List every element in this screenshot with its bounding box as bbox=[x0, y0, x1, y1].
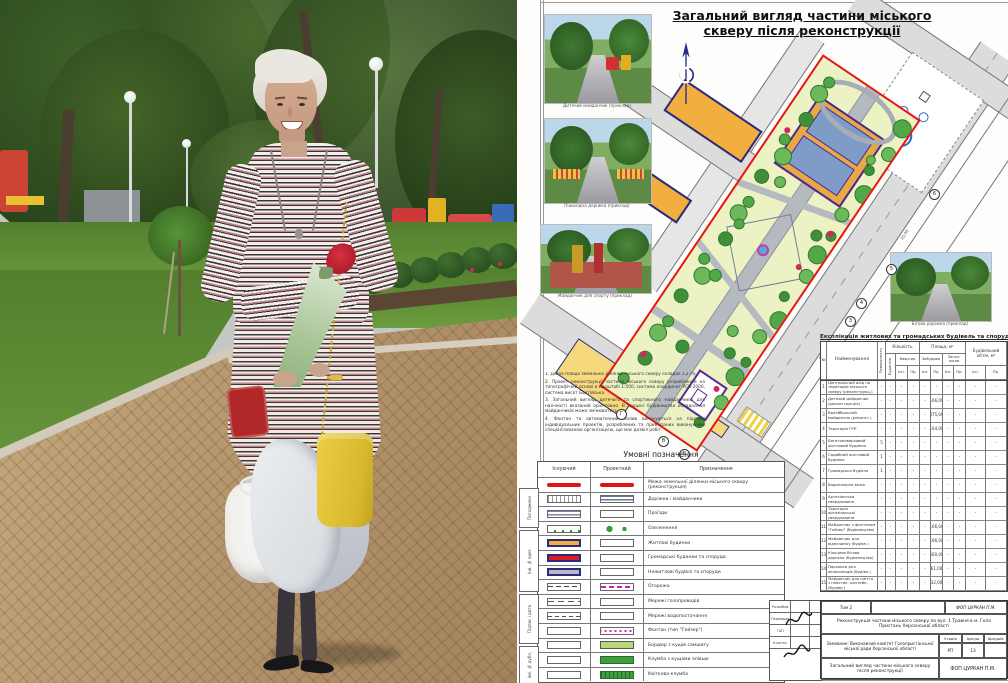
example-photo bbox=[544, 14, 652, 104]
table-cell: - bbox=[986, 409, 1007, 423]
lines-gray-swatch bbox=[600, 495, 634, 503]
legend-existing-swatch bbox=[538, 478, 591, 492]
table-cell: - bbox=[986, 563, 1007, 577]
legend-existing-swatch bbox=[538, 668, 591, 682]
tree-symbol bbox=[808, 227, 825, 244]
legend-label: Озеленення bbox=[644, 522, 784, 536]
plan-marker-4: 4 bbox=[856, 298, 867, 309]
table-cell: - bbox=[886, 437, 896, 451]
empty-swatch bbox=[600, 598, 634, 606]
screenshot: 25,00 40,00 8,00 bbox=[0, 0, 1008, 683]
hatch-dots-swatch bbox=[547, 495, 581, 503]
table-cell: Артезіанська свердловина bbox=[827, 493, 878, 507]
col-name: Найменування bbox=[827, 342, 878, 380]
rose-dot bbox=[470, 268, 474, 272]
legend-label: Бордюр з кущів самшиту bbox=[644, 639, 784, 653]
hair-fringe bbox=[255, 49, 313, 83]
rose-leaf bbox=[319, 267, 333, 279]
table-cell: - bbox=[966, 479, 986, 493]
sheet-header: Аркуш bbox=[962, 634, 985, 643]
flower-strip bbox=[617, 169, 644, 179]
table-cell: - bbox=[966, 381, 986, 395]
table-cell: - bbox=[886, 381, 896, 395]
table-cell: - bbox=[966, 493, 986, 507]
table-cell: - bbox=[896, 507, 908, 521]
table-cell: Дитячий майданчик (реконструкція) bbox=[827, 395, 878, 409]
neck bbox=[281, 141, 307, 157]
tree-symbol bbox=[804, 242, 830, 268]
table-cell: - bbox=[986, 535, 1007, 549]
table-cell: - bbox=[886, 507, 896, 521]
sheet-title-line2: скверу після реконструкції bbox=[637, 23, 967, 38]
table-cell: - bbox=[886, 479, 896, 493]
table-cell: - bbox=[966, 521, 986, 535]
table-cell: - bbox=[954, 437, 966, 451]
table-cell: - bbox=[931, 437, 943, 451]
table-cell: - bbox=[920, 381, 931, 395]
table-cell: - bbox=[886, 535, 896, 549]
legend-label: Громадські будинки та споруди bbox=[644, 551, 784, 565]
table-cell: - bbox=[954, 535, 966, 549]
table-cell: - bbox=[920, 437, 931, 451]
table-cell: - bbox=[986, 465, 1007, 479]
bld-gray-swatch bbox=[547, 568, 581, 576]
table-cell: - bbox=[954, 563, 966, 577]
table-cell: - bbox=[878, 535, 886, 549]
sub-ex: Існ. bbox=[966, 366, 986, 380]
empty-swatch bbox=[600, 510, 634, 518]
table-cell: - bbox=[943, 493, 954, 507]
table-row: 1Центральний вхід на територію міського … bbox=[821, 381, 1007, 395]
table-cell: - bbox=[886, 423, 896, 437]
table-cell: - bbox=[920, 521, 931, 535]
empty-swatch bbox=[600, 568, 634, 576]
legend-existing-swatch bbox=[538, 609, 591, 623]
hand bbox=[273, 371, 297, 387]
nose bbox=[288, 107, 292, 117]
table-cell: - bbox=[966, 563, 986, 577]
table-cell: - bbox=[908, 465, 920, 479]
trees-swatch bbox=[600, 525, 634, 533]
lamp-globe bbox=[124, 91, 136, 103]
table-cell: - bbox=[954, 409, 966, 423]
table-row: 5Багатоповерховий житловий будинок5-----… bbox=[821, 437, 1007, 451]
sub-ex: Існ. bbox=[896, 366, 908, 380]
table-row: 13Кільцева бігова доріжка (будівництво)-… bbox=[821, 549, 1007, 563]
table-row: 9Артезіанська свердловина---------- bbox=[821, 493, 1007, 507]
table-cell: - bbox=[896, 451, 908, 465]
photo-tree bbox=[550, 22, 592, 70]
lines-purple-swatch bbox=[547, 510, 581, 518]
legend-label: Доріжки і майданчики bbox=[644, 493, 784, 507]
table-cell: Водонапірна вежа bbox=[827, 479, 878, 493]
stamp-sheet-name: Загальний вигляд частини міського скверу… bbox=[821, 658, 939, 680]
example-photo bbox=[544, 118, 652, 204]
dots-magenta-swatch bbox=[600, 627, 634, 635]
table-cell: - bbox=[920, 563, 931, 577]
legend-row: Проїзди bbox=[538, 507, 784, 522]
table-cell: - bbox=[954, 507, 966, 521]
legend-existing-swatch bbox=[538, 493, 591, 507]
lamp-globe bbox=[182, 139, 191, 148]
signature bbox=[784, 609, 814, 631]
table-cell: Багатоповерховий житловий будинок bbox=[827, 437, 878, 451]
table-cell: - bbox=[966, 465, 986, 479]
table-cell: - bbox=[886, 577, 896, 591]
table-row: 11Майданчик з фонтаном "Гейзер" (будівни… bbox=[821, 521, 1007, 535]
empty-swatch bbox=[600, 612, 634, 620]
table-cell: - bbox=[943, 549, 954, 563]
legend-row: Житлові будинки bbox=[538, 536, 784, 551]
shoe bbox=[262, 654, 300, 673]
legend-existing-swatch bbox=[538, 653, 591, 667]
table-cell: - bbox=[878, 507, 886, 521]
legend-project-swatch bbox=[591, 551, 644, 565]
table-cell: - bbox=[896, 563, 908, 577]
sapling-canopy bbox=[148, 206, 214, 266]
note-paragraph: 2. Проект реконструкції частини міського… bbox=[545, 380, 705, 397]
table-cell: 166,00 bbox=[931, 535, 943, 549]
table-cell: - bbox=[986, 521, 1007, 535]
legend-row: Клумба з кущами ялівцю bbox=[538, 653, 784, 668]
table-cell: 164,00 bbox=[931, 423, 943, 437]
table-cell: - bbox=[986, 549, 1007, 563]
play-equipment bbox=[594, 243, 603, 274]
park-photo bbox=[0, 0, 517, 683]
table-cell: - bbox=[986, 381, 1007, 395]
table-row: 2Дитячий майданчик (реконструкція)-----1… bbox=[821, 395, 1007, 409]
table-cell: Центральний вхід на територію міського с… bbox=[827, 381, 878, 395]
table-cell: - bbox=[954, 381, 966, 395]
table-cell: - bbox=[908, 451, 920, 465]
table-cell: - bbox=[908, 549, 920, 563]
eye bbox=[277, 103, 283, 106]
table-cell: Майданчик з фонтаном "Гейзер" (будівницт… bbox=[827, 521, 878, 535]
table-title: Експлікація житлових та громадських буді… bbox=[820, 334, 1008, 340]
legend-existing-swatch bbox=[538, 624, 591, 638]
green-light-swatch bbox=[600, 641, 634, 649]
table-cell: - bbox=[896, 577, 908, 591]
table-cell: 32,00 bbox=[931, 577, 943, 591]
legend-project-swatch bbox=[591, 624, 644, 638]
table-cell: - bbox=[908, 535, 920, 549]
legend-project-swatch bbox=[591, 668, 644, 682]
table-cell: - bbox=[931, 381, 943, 395]
title-block: Том 2 ФОП ЦУРКАН П.М. Реконструкція част… bbox=[820, 600, 1008, 679]
table-row: 12Майданчик для відпочинку (будівн.)----… bbox=[821, 535, 1007, 549]
table-cell: - bbox=[896, 381, 908, 395]
table-cell: - bbox=[986, 479, 1007, 493]
table-cell: - bbox=[878, 395, 886, 409]
table-cell: - bbox=[943, 507, 954, 521]
table-cell: - bbox=[966, 549, 986, 563]
table-cell: - bbox=[920, 493, 931, 507]
legend-existing-swatch bbox=[538, 551, 591, 565]
table-cell: - bbox=[896, 535, 908, 549]
sub-pr: Пр. bbox=[986, 366, 1007, 380]
group-qty: Кількість bbox=[886, 342, 920, 354]
legend-project-swatch bbox=[591, 609, 644, 623]
table-cell: - bbox=[931, 507, 943, 521]
table-cell: - bbox=[920, 535, 931, 549]
plan-marker-В: В bbox=[658, 436, 669, 447]
legend-project-swatch bbox=[591, 507, 644, 521]
table-cell: - bbox=[878, 577, 886, 591]
table-cell: - bbox=[908, 577, 920, 591]
empty-swatch bbox=[547, 656, 581, 664]
line-red-swatch bbox=[547, 483, 581, 487]
table-row: 10Територія артезіанської свердловини---… bbox=[821, 507, 1007, 521]
yellow-handbag bbox=[317, 433, 373, 527]
empty-swatch bbox=[547, 641, 581, 649]
table-cell: - bbox=[943, 535, 954, 549]
table-cell: - bbox=[886, 493, 896, 507]
table-cell: - bbox=[920, 549, 931, 563]
table-cell: - bbox=[920, 507, 931, 521]
sheet-title: Загальний вигляд частини міського скверу… bbox=[637, 8, 967, 38]
table-cell: 166,00 bbox=[931, 395, 943, 409]
leg bbox=[276, 585, 296, 666]
tree-symbol bbox=[777, 289, 792, 304]
table-cell: - bbox=[943, 465, 954, 479]
sub-ex: Існ. bbox=[920, 366, 931, 380]
legend: Умовні позначення Існуючий Проектний При… bbox=[537, 450, 785, 683]
table-cell: - bbox=[966, 409, 986, 423]
stage-header: Стадія bbox=[939, 634, 962, 643]
table-cell: - bbox=[943, 423, 954, 437]
col-buildings: Будинків bbox=[886, 354, 896, 380]
legend-row: Огорожа bbox=[538, 580, 784, 595]
sub-pr: Пр. bbox=[908, 366, 920, 380]
stamp-tom: Том 2 bbox=[821, 601, 871, 614]
table-cell: 1 bbox=[878, 465, 886, 479]
table-cell: - bbox=[966, 423, 986, 437]
legend-existing-swatch bbox=[538, 536, 591, 550]
legend-existing-swatch bbox=[538, 522, 591, 536]
table-cell: - bbox=[896, 549, 908, 563]
lamp-post bbox=[129, 102, 132, 230]
legend-row: Мережі газопроводів bbox=[538, 595, 784, 610]
eye bbox=[299, 103, 305, 106]
table-cell: Громадська будівля bbox=[827, 465, 878, 479]
example-photo-caption: Бігова доріжка (приклад) bbox=[890, 321, 990, 326]
table-cell: - bbox=[878, 423, 886, 437]
table-cell: - bbox=[931, 479, 943, 493]
legend-label: Фонтан (тип "Гейзер") bbox=[644, 624, 784, 638]
table-cell: - bbox=[986, 451, 1007, 465]
table-cell: 560,00 bbox=[931, 549, 943, 563]
table-cell: - bbox=[908, 493, 920, 507]
legend-col-project: Проектний bbox=[591, 462, 644, 477]
legend-label: Межа земельної ділянки міського скверу (… bbox=[644, 478, 784, 492]
col-floors: Поверховість bbox=[878, 342, 886, 380]
table-cell: - bbox=[966, 437, 986, 451]
table-cell: - bbox=[920, 577, 931, 591]
legend-label: Житлові будинки bbox=[644, 536, 784, 550]
table-cell: - bbox=[943, 409, 954, 423]
table-cell: - bbox=[896, 437, 908, 451]
table-cell: - bbox=[966, 577, 986, 591]
legend-project-swatch bbox=[591, 536, 644, 550]
dash-magenta-swatch bbox=[600, 583, 634, 591]
table-cell: - bbox=[896, 395, 908, 409]
stamp-code: ФОП ЦУРКАН П.М. bbox=[945, 601, 1007, 614]
table-row: 15Майданчик для сміття з пластик. контей… bbox=[821, 577, 1007, 591]
legend-project-swatch bbox=[591, 639, 644, 653]
tree-symbol bbox=[772, 174, 789, 191]
legend-row: Громадські будинки та споруди bbox=[538, 551, 784, 566]
legend-title: Умовні позначення bbox=[537, 450, 785, 461]
table-cell: - bbox=[943, 577, 954, 591]
legend-existing-swatch bbox=[538, 507, 591, 521]
photo-tree bbox=[896, 258, 936, 295]
table-cell: - bbox=[886, 549, 896, 563]
legend-label: Квіткова клумба bbox=[644, 668, 784, 682]
table-cell: - bbox=[943, 521, 954, 535]
empty-swatch bbox=[600, 539, 634, 547]
table-cell: - bbox=[878, 549, 886, 563]
plan-marker-3: 3 bbox=[845, 316, 856, 327]
sapling-trunk bbox=[178, 240, 181, 336]
table-cell: - bbox=[908, 437, 920, 451]
table-cell: Кільцева бігова доріжка (будівництво) bbox=[827, 549, 878, 563]
frame-line bbox=[540, 2, 1008, 3]
legend-label: Мережі водопостачання bbox=[644, 609, 784, 623]
table-cell: - bbox=[931, 451, 943, 465]
table-cell: - bbox=[878, 493, 886, 507]
table-cell: - bbox=[986, 507, 1007, 521]
table-cell: - bbox=[943, 563, 954, 577]
table-cell: - bbox=[943, 479, 954, 493]
side-strip-box: Інв. № ориг. bbox=[519, 530, 539, 592]
table-cell: - bbox=[886, 409, 896, 423]
table-cell: - bbox=[878, 409, 886, 423]
col-built: Забудови bbox=[920, 354, 943, 366]
legend-col-existing: Існуючий bbox=[538, 462, 591, 477]
table-cell: - bbox=[966, 395, 986, 409]
table-cell: - bbox=[920, 409, 931, 423]
legend-label: Мережі газопроводів bbox=[644, 595, 784, 609]
table-cell: - bbox=[886, 465, 896, 479]
empty-swatch bbox=[600, 554, 634, 562]
north-arrow-icon bbox=[673, 42, 699, 104]
table-cell: - bbox=[986, 493, 1007, 507]
table-cell: - bbox=[954, 549, 966, 563]
table-cell: 61,00 bbox=[931, 563, 943, 577]
stamp-empty bbox=[871, 601, 945, 614]
photo-tree bbox=[607, 228, 649, 262]
legend-project-swatch bbox=[591, 522, 644, 536]
table-cell: - bbox=[943, 381, 954, 395]
table-cell: - bbox=[896, 479, 908, 493]
table-cell: 1 bbox=[878, 451, 886, 465]
table-cell: Територія артезіанської свердловини bbox=[827, 507, 878, 521]
table-cell: - bbox=[943, 437, 954, 451]
legend-row: Мережі водопостачання bbox=[538, 609, 784, 624]
table-cell: - bbox=[920, 479, 931, 493]
legend-row: Озеленення bbox=[538, 522, 784, 537]
legend-project-swatch bbox=[591, 493, 644, 507]
play-equipment bbox=[621, 55, 631, 69]
table-cell: - bbox=[954, 479, 966, 493]
plan-marker-5: 5 bbox=[886, 264, 897, 275]
table-cell: - bbox=[908, 395, 920, 409]
legend-project-swatch bbox=[591, 478, 644, 492]
stamp-firm: ФОП ЦУРКАН П.М. bbox=[939, 658, 1007, 680]
legend-label: Огорожа bbox=[644, 580, 784, 594]
plan-marker-Г: Г bbox=[616, 409, 627, 420]
side-strip-box: Підпис і дата bbox=[519, 594, 539, 644]
group-area: Площа, м² bbox=[920, 342, 966, 354]
example-photo-caption: Дитячий майданчик (приклад) bbox=[544, 103, 650, 108]
hedge-bush bbox=[488, 243, 517, 269]
table-cell: Парковка для велосипедів (будівн.) bbox=[827, 563, 878, 577]
legend-existing-swatch bbox=[538, 566, 591, 580]
woman bbox=[215, 45, 405, 675]
photo-tree bbox=[550, 126, 592, 172]
legend-existing-swatch bbox=[538, 639, 591, 653]
table-cell: - bbox=[878, 381, 886, 395]
example-photo bbox=[890, 252, 992, 322]
table-cell: - bbox=[920, 451, 931, 465]
table-cell: - bbox=[896, 521, 908, 535]
table-cell: Садибний житловий будинок bbox=[827, 451, 878, 465]
table-cell: - bbox=[954, 395, 966, 409]
stamp-customer: Замовник: Виконавчий комітет Голопристан… bbox=[821, 634, 939, 658]
legend-row: Квіткова клумба bbox=[538, 668, 784, 682]
table-cell: - bbox=[954, 521, 966, 535]
legend-col-purpose: Призначення bbox=[644, 462, 784, 477]
table-row: 7Громадська будівля1--------- bbox=[821, 465, 1007, 479]
table-cell: - bbox=[943, 451, 954, 465]
table-cell: - bbox=[954, 423, 966, 437]
table-row: 8Водонапірна вежа---------- bbox=[821, 479, 1007, 493]
red-wrapped-item bbox=[226, 385, 269, 439]
flower-strip bbox=[553, 169, 580, 179]
table-cell: - bbox=[886, 521, 896, 535]
green-solid-swatch bbox=[600, 656, 634, 664]
table-cell: - bbox=[886, 451, 896, 465]
table-cell: Майданчик для сміття з пластик. контейн.… bbox=[827, 577, 878, 591]
table-cell: - bbox=[954, 577, 966, 591]
play-equipment bbox=[572, 245, 583, 272]
table-cell: - bbox=[920, 423, 931, 437]
table-cell: - bbox=[878, 521, 886, 535]
table-cell: 166,00 bbox=[931, 521, 943, 535]
legend-label: Нежитлові будівлі та споруди bbox=[644, 566, 784, 580]
legend-project-swatch bbox=[591, 566, 644, 580]
table-cell: - bbox=[986, 423, 1007, 437]
legend-row: Нежитлові будівлі та споруди bbox=[538, 566, 784, 581]
table-cell: - bbox=[966, 507, 986, 521]
table-row: 3Волейбольний майданчик (реконст.)-----8… bbox=[821, 409, 1007, 423]
example-photo bbox=[540, 224, 652, 294]
table-cell: - bbox=[920, 395, 931, 409]
tree-symbol bbox=[724, 323, 741, 340]
necklace-pendant bbox=[295, 229, 303, 239]
sub-ex: Існ. bbox=[943, 366, 954, 380]
legend-row: Доріжки і майданчики bbox=[538, 493, 784, 508]
photo-tree bbox=[609, 123, 649, 165]
side-strip-box: Інв. № дубл. bbox=[519, 646, 539, 683]
table-row: 6Садибний житловий будинок1--------- bbox=[821, 451, 1007, 465]
legend-project-swatch bbox=[591, 595, 644, 609]
signature bbox=[782, 643, 812, 665]
drawing-sheet: 25,00 40,00 8,00 bbox=[517, 0, 1008, 683]
sheet-value: 13 bbox=[962, 643, 985, 658]
rose-dot bbox=[498, 262, 502, 266]
hedge-bush bbox=[462, 247, 492, 273]
